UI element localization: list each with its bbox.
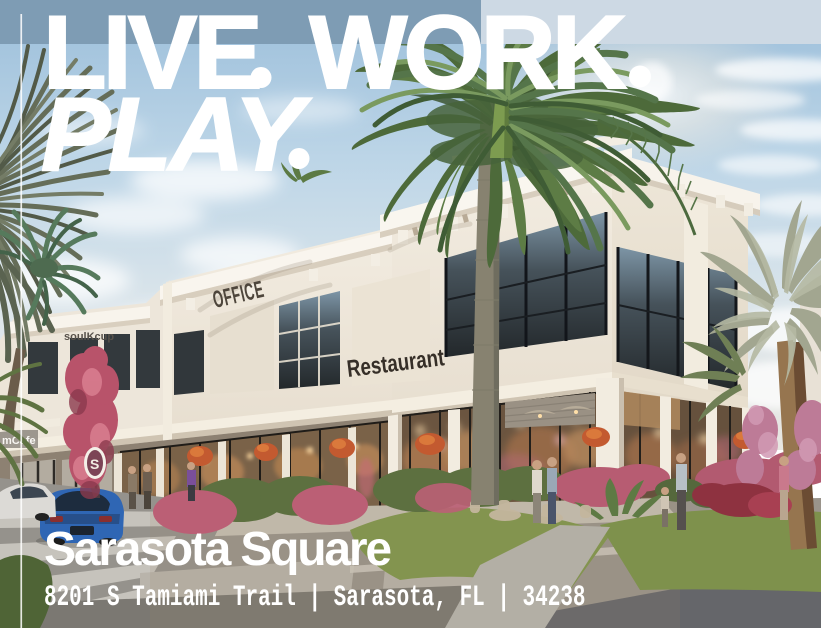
svg-text:S: S <box>90 456 99 472</box>
svg-text:soulKcup: soulKcup <box>64 331 114 343</box>
svg-text:PLAY.: PLAY. <box>41 77 318 193</box>
svg-text:8201 S Tamiami Trail | Sarasot: 8201 S Tamiami Trail | Sarasota, FL | 34… <box>44 581 586 614</box>
svg-text:Sarasota Square: Sarasota Square <box>44 523 391 576</box>
